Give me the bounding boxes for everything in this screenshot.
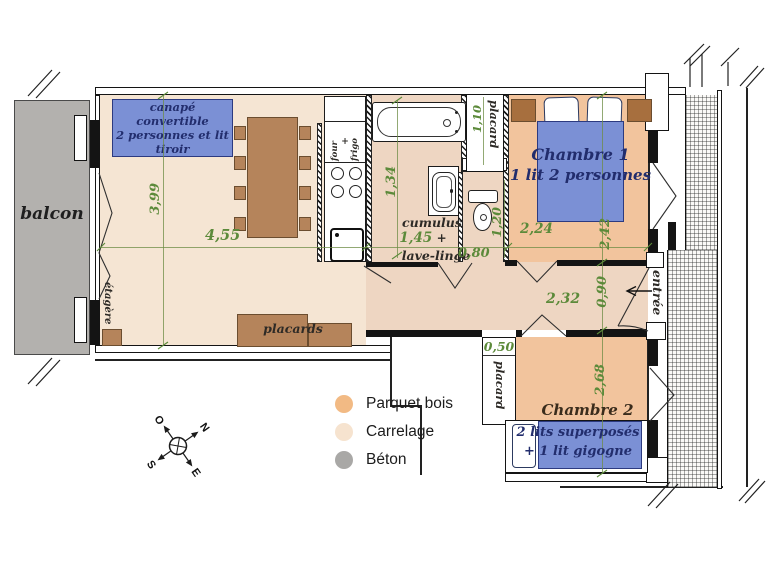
bedroom1-title: Chambre 1	[498, 145, 663, 164]
legend-dot-parquet	[335, 395, 353, 413]
nightstand	[627, 99, 652, 122]
compass-west: O	[151, 413, 166, 427]
washbasin-counter	[428, 166, 459, 216]
closet-bedroom2: 0,50 placard	[482, 337, 516, 425]
nightstand	[511, 99, 536, 122]
bedroom2-bed-line2: + 1 lit gigogne	[500, 444, 656, 459]
right-wall-block2	[648, 229, 658, 253]
bedroom2-title: Chambre 2	[530, 401, 645, 419]
wall-bedroom1-bottom-a	[505, 260, 517, 266]
washbasin	[432, 172, 456, 212]
wall-hall-bottom-c	[566, 330, 600, 337]
closet-bedroom2-label: placard	[493, 361, 507, 409]
balcony-window-bottom	[74, 297, 87, 343]
bathtub	[372, 102, 466, 142]
dim-line-closet-v	[483, 97, 484, 165]
legend-label-carrelage: Carrelage	[366, 423, 434, 441]
closets-label: placards	[243, 321, 343, 336]
wall-living-bottom-line	[95, 359, 392, 361]
kitchen-divider1	[325, 121, 365, 122]
bedroom1-subtitle: 1 lit 2 personnes	[493, 166, 668, 184]
legend-dot-carrelage	[335, 423, 353, 441]
dim-bedroom2-depth: 2,68	[593, 364, 608, 396]
shelf-unit	[102, 329, 122, 346]
balcony-label: balcon	[15, 204, 89, 224]
bathroom-mid-dim: 1,45 +	[392, 230, 454, 246]
wall-left-block2	[90, 300, 100, 345]
dim-bedroom1-depth: 2,42	[598, 218, 613, 250]
stove-burner	[349, 185, 362, 198]
water-heater-label: cumulus	[400, 215, 464, 230]
pier-entree-top	[646, 252, 664, 268]
sofa-label-box: canapé convertible 2 personnes et lit ti…	[112, 99, 233, 157]
wall-hall-bottom-a	[366, 330, 482, 337]
sofa-label-line1: canapé convertible	[113, 100, 232, 128]
closet-bath-label: placard	[487, 100, 501, 148]
plus-sign: +	[437, 231, 447, 245]
property-line-right	[746, 88, 748, 487]
compass-icon: N S E O	[140, 408, 216, 484]
dim-entry: 0,90	[595, 276, 610, 308]
dining-table	[247, 117, 298, 238]
bathroom-width-dim: 1,45	[399, 230, 432, 246]
corridor-hatch-lower	[667, 250, 718, 487]
stove-burner	[331, 185, 344, 198]
dim-line-horizontal	[100, 247, 648, 248]
chair	[234, 156, 246, 170]
legend-dot-beton	[335, 451, 353, 469]
right-wall-block3	[648, 340, 658, 366]
dim-bath-depth: 1,34	[384, 166, 399, 198]
wall-entree-bottom	[600, 329, 648, 337]
floor-plan: balcon four + frigo	[0, 0, 768, 576]
chair	[299, 217, 311, 231]
stove-burner	[349, 167, 362, 180]
oven-fridge-unit: four + frigo	[326, 123, 364, 161]
dim-living-depth: 3,99	[148, 183, 163, 215]
legend-label-parquet: Parquet bois	[366, 395, 453, 413]
chair	[299, 156, 311, 170]
compass-east: E	[189, 466, 203, 479]
plus-sign: +	[341, 137, 349, 147]
fridge-label: frigo	[350, 123, 360, 161]
chair	[234, 186, 246, 200]
pier-entree-bottom	[646, 322, 666, 340]
legend-label-beton: Béton	[366, 451, 407, 469]
oven-label: four	[330, 123, 340, 161]
dim-line-living-v	[163, 95, 164, 345]
corridor-hatch-upper	[685, 95, 718, 250]
dim-wc: 1,20	[489, 207, 504, 237]
chair	[299, 186, 311, 200]
stove-burner	[331, 167, 344, 180]
dim-bath-door: 0,80	[458, 246, 490, 261]
closet-bath-dim: 1,10	[470, 105, 484, 133]
dim-hallway-width: 2,32	[546, 291, 580, 307]
shelf-label: étagère	[102, 282, 113, 324]
wall-bedroom2-bottom	[505, 473, 660, 482]
legend-item-parquet: Parquet bois	[335, 395, 453, 413]
kitchen-sink	[330, 228, 364, 262]
corridor-right-wall	[717, 90, 722, 489]
compass-north: N	[197, 421, 211, 434]
dim-bedroom1-width: 2,24	[520, 221, 553, 237]
bedroom2-bed-line1: 2 lits superposés	[500, 425, 656, 440]
entrance-label: entrée	[650, 270, 665, 315]
wall-left-block1	[90, 120, 100, 168]
compass-south: S	[144, 458, 158, 471]
legend-item-beton: Béton	[335, 451, 407, 469]
legend-item-carrelage: Carrelage	[335, 423, 434, 441]
chair	[234, 126, 246, 140]
dim-line-wc-v	[504, 180, 505, 258]
closet-bedroom2-dim: 0,50	[483, 338, 515, 356]
wall-top	[95, 87, 686, 95]
sofa-label-line2: 2 personnes et lit tiroir	[113, 128, 232, 156]
dim-living-width: 4,55	[205, 227, 240, 244]
wall-kitchen-left	[317, 123, 322, 262]
balcony-window-top	[74, 115, 87, 161]
wall-hall-bottom-b	[516, 330, 522, 337]
kitchen-divider2	[325, 162, 365, 163]
chair	[299, 126, 311, 140]
